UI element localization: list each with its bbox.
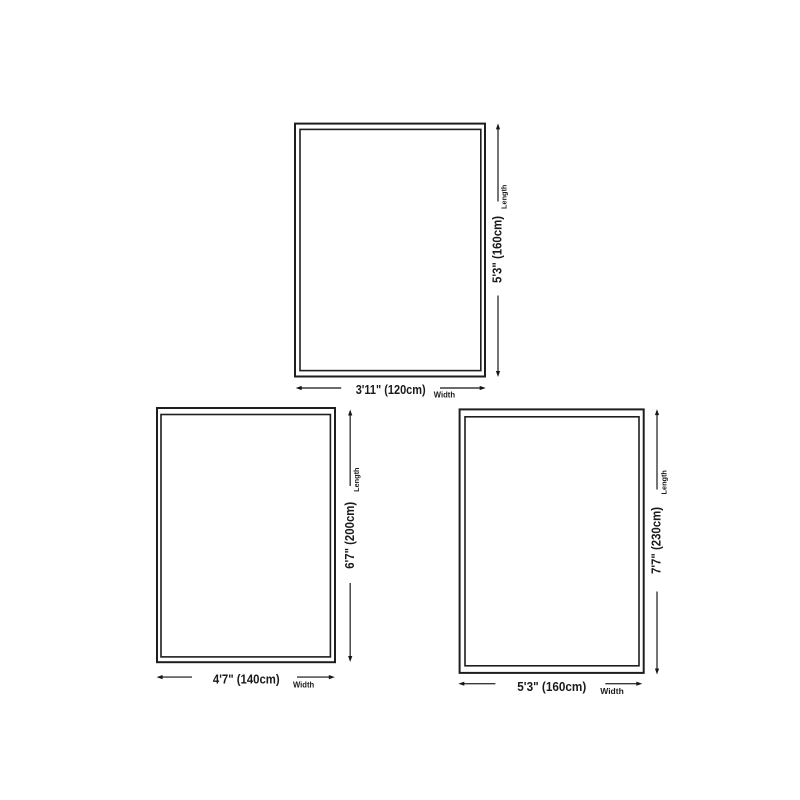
svg-text:Width: Width (293, 681, 314, 690)
svg-text:Width: Width (600, 687, 624, 696)
svg-text:5'3" (160cm): 5'3" (160cm) (490, 216, 505, 283)
svg-text:3'11" (120cm): 3'11" (120cm) (356, 382, 426, 397)
svg-text:7'7" (230cm): 7'7" (230cm) (649, 507, 664, 574)
svg-text:Length: Length (500, 184, 509, 209)
svg-text:6'7" (200cm): 6'7" (200cm) (342, 502, 357, 569)
svg-text:Width: Width (434, 390, 455, 399)
svg-text:Length: Length (660, 470, 669, 495)
svg-text:5'3" (160cm): 5'3" (160cm) (517, 679, 586, 694)
svg-text:4'7" (140cm): 4'7" (140cm) (213, 672, 280, 687)
svg-text:Length: Length (352, 467, 361, 492)
